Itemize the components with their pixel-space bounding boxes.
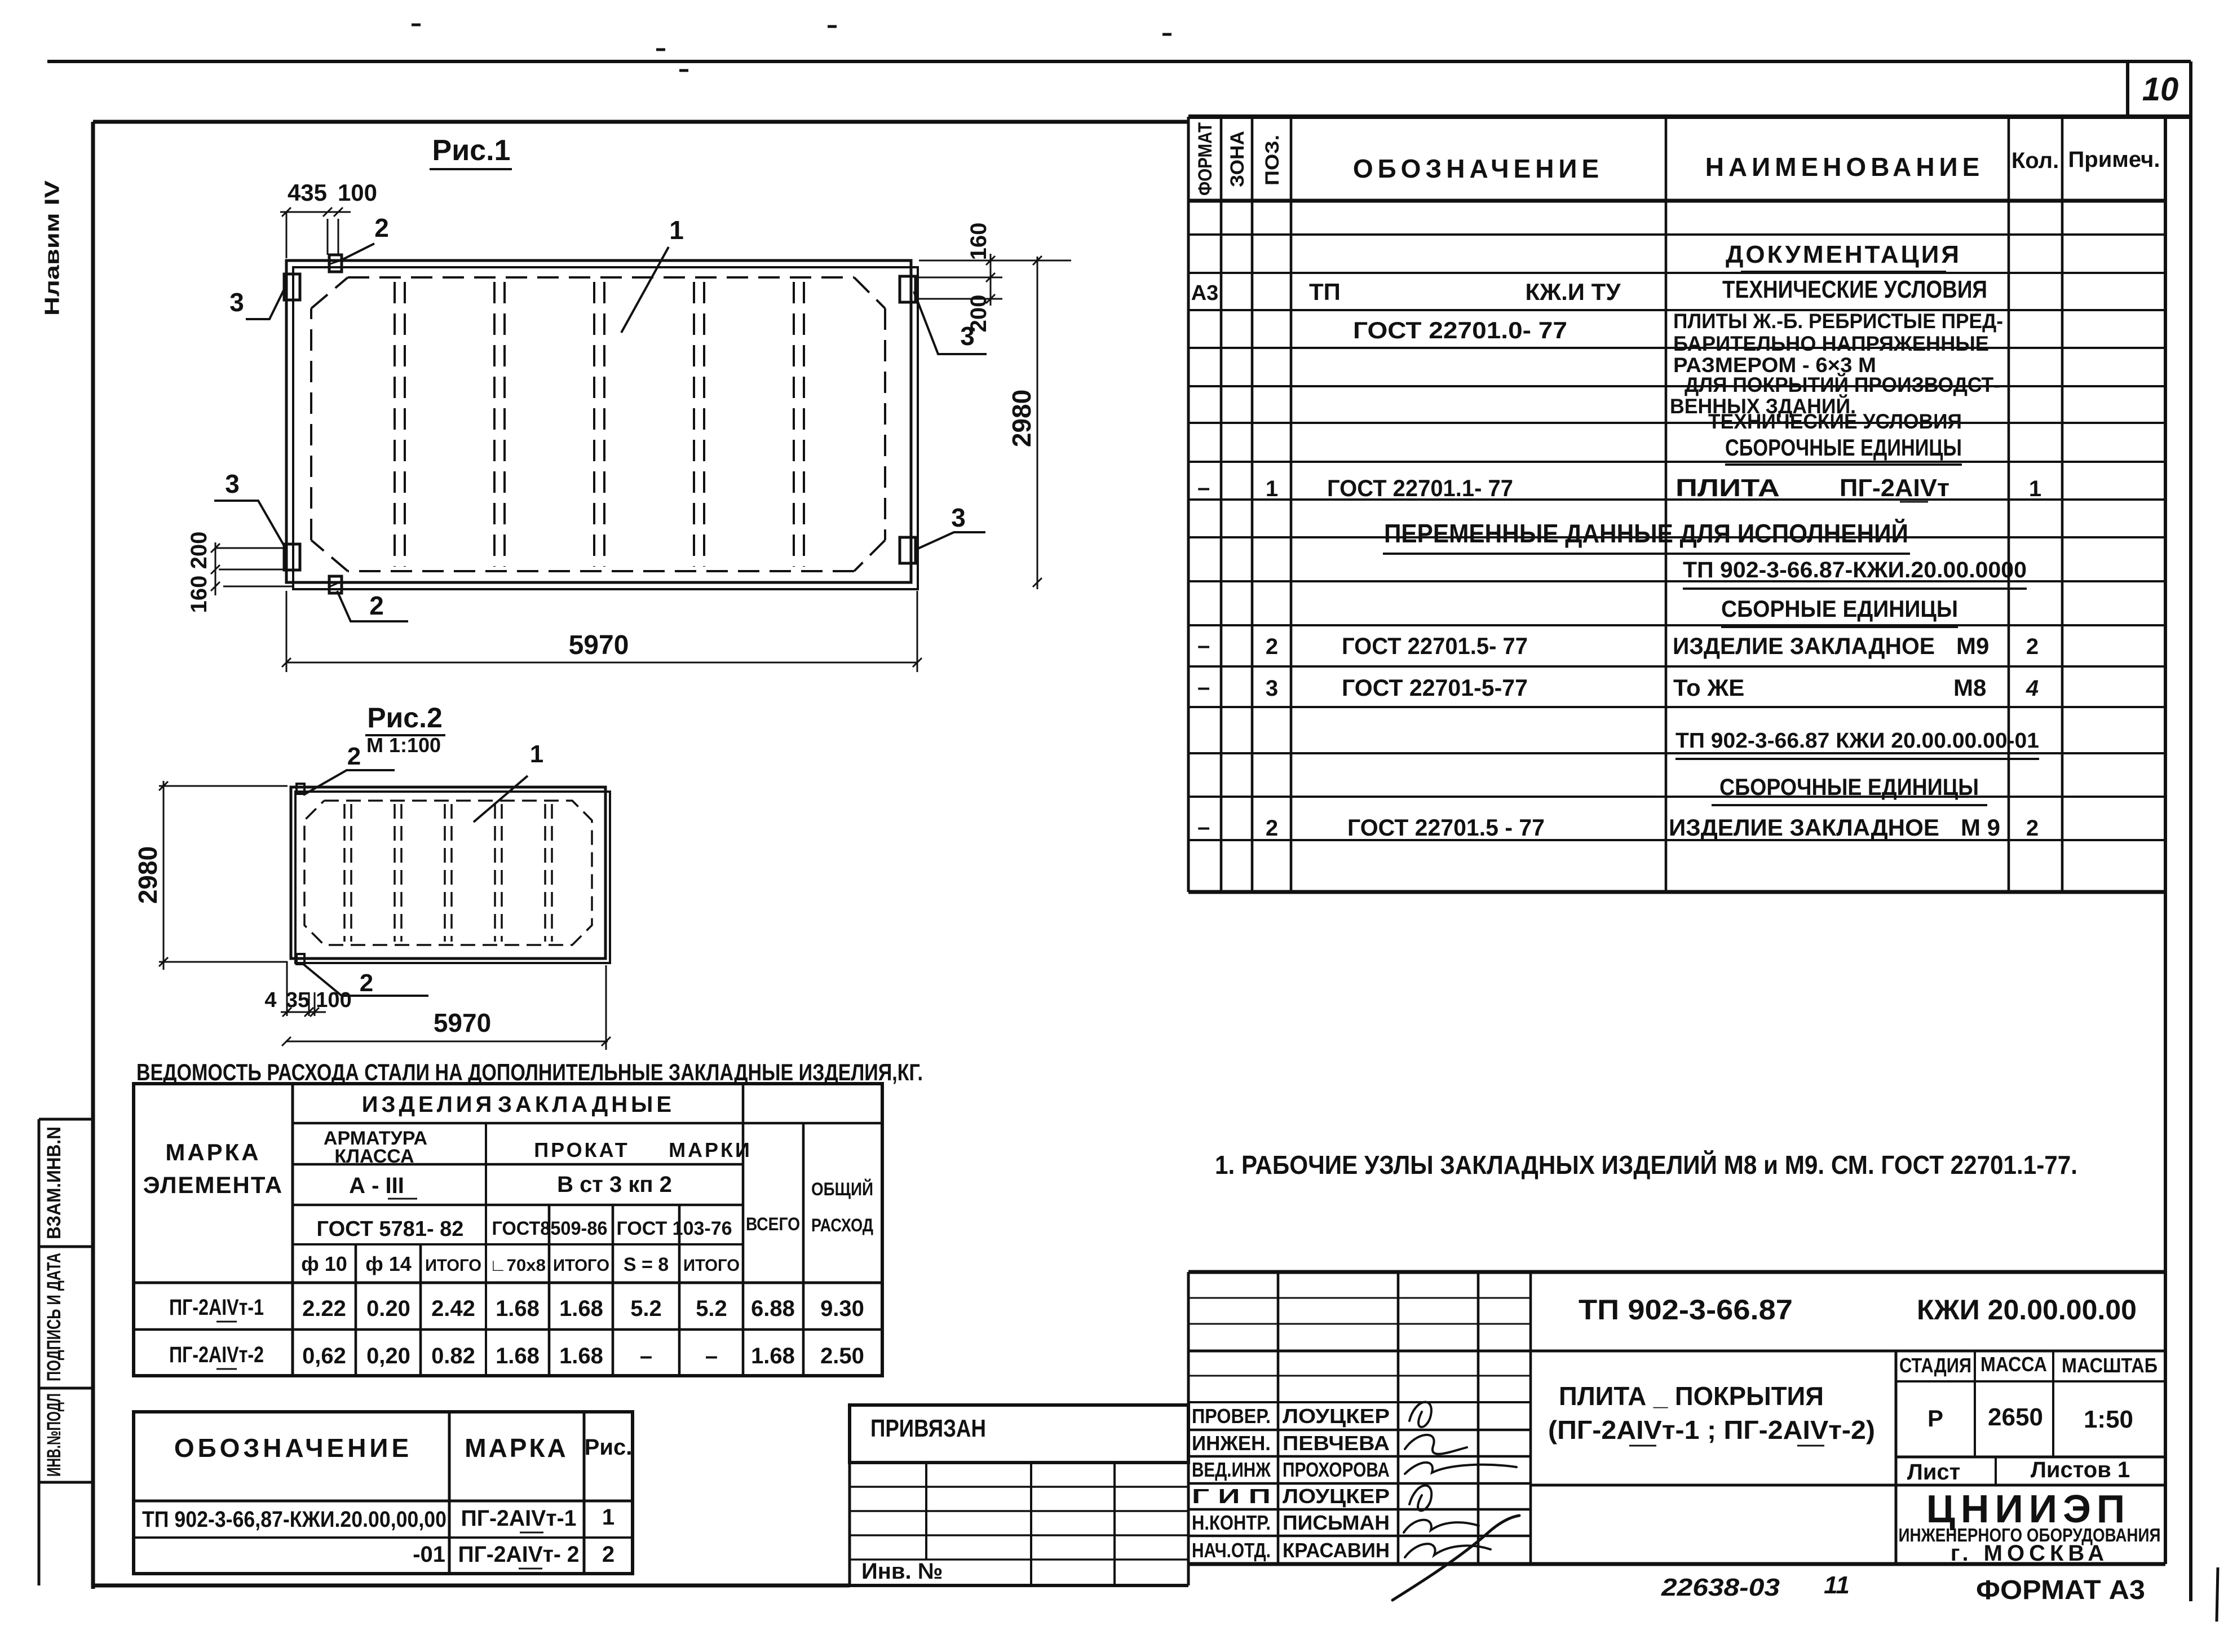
svg-text:БАРИТЕЛЬНО НАПРЯЖЕННЫЕ: БАРИТЕЛЬНО НАПРЯЖЕННЫЕ — [1673, 332, 1989, 355]
svg-text:ГОСТ 103-76: ГОСТ 103-76 — [617, 1218, 732, 1239]
svg-text:ПГ-2АIVт-2: ПГ-2АIVт-2 — [169, 1342, 264, 1367]
svg-text:Рис.2: Рис.2 — [367, 702, 443, 734]
svg-text:Примеч.: Примеч. — [2068, 147, 2160, 172]
svg-text:ЛОУЦКЕР: ЛОУЦКЕР — [1283, 1485, 1390, 1508]
svg-text:Н.КОНТР.: Н.КОНТР. — [1192, 1511, 1271, 1534]
svg-text:35: 35 — [286, 988, 310, 1012]
svg-text:1.68: 1.68 — [751, 1344, 795, 1368]
svg-text:Рис.: Рис. — [585, 1435, 633, 1460]
svg-text:ПЛИТА _ ПОКРЫТИЯ: ПЛИТА _ ПОКРЫТИЯ — [1559, 1381, 1824, 1411]
svg-text:1: 1 — [2029, 476, 2041, 501]
svg-text:КЛАССА: КЛАССА — [334, 1146, 414, 1167]
svg-text:ПГ-2АIVт-1: ПГ-2АIVт-1 — [169, 1295, 264, 1320]
svg-text:ТП: ТП — [1309, 279, 1341, 305]
svg-text:ИТОГО: ИТОГО — [425, 1256, 481, 1275]
svg-text:1. РАБОЧИЕ УЗЛЫ ЗАКЛАДНЫХ: 1. РАБОЧИЕ УЗЛЫ ЗАКЛАДНЫХ ИЗДЕЛИЙ М8 и М… — [1215, 1150, 2077, 1180]
svg-text:ИНВ.№ПОДЛ: ИНВ.№ПОДЛ — [43, 1393, 65, 1477]
svg-text:ЭЛЕМЕНТА: ЭЛЕМЕНТА — [143, 1172, 283, 1198]
svg-text:1.68: 1.68 — [496, 1344, 540, 1368]
svg-text:М9: М9 — [1956, 633, 1989, 659]
svg-text:1.68: 1.68 — [559, 1344, 603, 1368]
svg-text:200: 200 — [187, 532, 211, 569]
svg-text:22638-03: 22638-03 — [1661, 1574, 1780, 1601]
svg-text:В ст 3 кп 2: В ст 3 кп 2 — [557, 1172, 672, 1197]
svg-text:ИНЖЕН.: ИНЖЕН. — [1192, 1432, 1271, 1455]
svg-text:5970: 5970 — [569, 630, 629, 660]
svg-text:ОБОЗНАЧЕНИЕ: ОБОЗНАЧЕНИЕ — [1353, 154, 1603, 183]
svg-text:10: 10 — [2142, 71, 2179, 108]
svg-text:М8: М8 — [1953, 674, 1986, 701]
svg-text:ГОСТ 22701.0- 77: ГОСТ 22701.0- 77 — [1353, 317, 1567, 343]
svg-text:А3: А3 — [1191, 281, 1219, 305]
svg-text:НАЧ.ОТД.: НАЧ.ОТД. — [1192, 1539, 1271, 1562]
svg-text:0,62: 0,62 — [302, 1344, 346, 1368]
svg-text:ТЕХНИЧЕСКИЕ УСЛОВИЯ: ТЕХНИЧЕСКИЕ УСЛОВИЯ — [1722, 276, 1987, 303]
svg-text:–: – — [1197, 815, 1210, 840]
svg-text:2: 2 — [2026, 634, 2039, 659]
svg-text:∟70х8: ∟70х8 — [489, 1256, 546, 1275]
svg-text:ИЗДЕЛИЕ ЗАКЛАДНОЕ: ИЗДЕЛИЕ ЗАКЛАДНОЕ — [1673, 633, 1935, 659]
svg-text:ИТОГО: ИТОГО — [553, 1256, 609, 1275]
svg-text:КРАСАВИН: КРАСАВИН — [1283, 1539, 1390, 1562]
svg-text:ФОРМАТ: ФОРМАТ — [1195, 122, 1216, 196]
svg-text:(ПГ-2АIVт-1 ; ПГ-2АIVт-2): (ПГ-2АIVт-1 ; ПГ-2АIVт-2) — [1548, 1415, 1875, 1445]
svg-text:СБОРНЫЕ ЕДИНИЦЫ: СБОРНЫЕ ЕДИНИЦЫ — [1721, 595, 1958, 622]
svg-text:ПЕВЧЕВА: ПЕВЧЕВА — [1283, 1432, 1390, 1455]
svg-text:СБОРОЧНЫЕ ЕДИНИЦЫ: СБОРОЧНЫЕ ЕДИНИЦЫ — [1725, 434, 1962, 461]
svg-text:2.42: 2.42 — [431, 1296, 475, 1321]
svg-text:ДЛЯ ПОКРЫТИЙ ПРОИЗВОДСТ-: ДЛЯ ПОКРЫТИЙ ПРОИЗВОДСТ- — [1685, 373, 2000, 396]
svg-text:То ЖЕ: То ЖЕ — [1673, 674, 1744, 701]
svg-text:2: 2 — [1266, 816, 1278, 841]
svg-text:4: 4 — [2026, 676, 2039, 701]
svg-text:5.2: 5.2 — [696, 1296, 727, 1321]
svg-text:1: 1 — [530, 740, 543, 768]
svg-text:ЛОУЦКЕР: ЛОУЦКЕР — [1283, 1404, 1390, 1428]
svg-text:ПОДПИСЬ И ДАТА: ПОДПИСЬ И ДАТА — [43, 1253, 65, 1381]
svg-text:Кол.: Кол. — [2011, 148, 2059, 173]
svg-text:Р: Р — [1927, 1405, 1943, 1432]
svg-text:ИТОГО: ИТОГО — [683, 1256, 740, 1275]
svg-text:ГОСТ8509-86: ГОСТ8509-86 — [492, 1218, 608, 1239]
svg-text:ФОРМАТ А3: ФОРМАТ А3 — [1976, 1575, 2145, 1605]
svg-text:2: 2 — [360, 969, 373, 997]
svg-text:г. МОСКВА: г. МОСКВА — [1951, 1541, 2108, 1566]
svg-text:НАИМЕНОВАНИЕ: НАИМЕНОВАНИЕ — [1705, 152, 1984, 182]
svg-text:ТП 902-3-66.87-КЖИ.20.00.0000: ТП 902-3-66.87-КЖИ.20.00.0000 — [1683, 558, 2027, 582]
svg-text:1: 1 — [1266, 476, 1278, 501]
svg-text:ПГ-2АIVт- 2: ПГ-2АIVт- 2 — [458, 1542, 580, 1567]
svg-text:2: 2 — [369, 591, 384, 620]
svg-text:1:50: 1:50 — [2084, 1406, 2133, 1433]
svg-text:2: 2 — [2026, 816, 2039, 841]
svg-text:–: – — [640, 1344, 652, 1368]
svg-text:100: 100 — [338, 179, 377, 206]
svg-text:ГОСТ 22701.5 - 77: ГОСТ 22701.5 - 77 — [1347, 814, 1545, 841]
svg-text:Листов 1: Листов 1 — [2031, 1457, 2130, 1482]
svg-text:ПИСЬМАН: ПИСЬМАН — [1283, 1511, 1390, 1534]
svg-text:2: 2 — [347, 743, 361, 770]
svg-text:435: 435 — [288, 179, 327, 206]
svg-text:МАРКА: МАРКА — [465, 1433, 568, 1463]
svg-text:Инв. №: Инв. № — [861, 1559, 943, 1584]
svg-text:5970: 5970 — [434, 1008, 491, 1037]
svg-text:1.68: 1.68 — [496, 1296, 540, 1321]
svg-text:ПРОВЕР.: ПРОВЕР. — [1192, 1404, 1271, 1428]
svg-text:ВЗАМ.ИНВ.N: ВЗАМ.ИНВ.N — [43, 1127, 65, 1239]
svg-text:Рис.1: Рис.1 — [432, 134, 511, 167]
svg-text:3: 3 — [951, 503, 966, 532]
svg-text:1: 1 — [602, 1505, 614, 1530]
svg-text:–: – — [705, 1344, 718, 1368]
svg-text:2650: 2650 — [1988, 1403, 2043, 1431]
svg-text:ТЕХНИЧЕСКИЕ УСЛОВИЯ: ТЕХНИЧЕСКИЕ УСЛОВИЯ — [1708, 410, 1962, 433]
svg-text:1: 1 — [669, 215, 684, 245]
svg-text:А - III: А - III — [349, 1173, 404, 1198]
svg-text:М 9: М 9 — [1961, 814, 2000, 841]
svg-text:РАСХОД: РАСХОД — [811, 1215, 873, 1235]
svg-text:ПГ-2АIVт: ПГ-2АIVт — [1840, 474, 1949, 502]
svg-text:ТП 902-3-66.87 КЖИ 20.00.00.00: ТП 902-3-66.87 КЖИ 20.00.00.00-01 — [1675, 729, 2039, 753]
svg-text:ГОСТ 22701-5-77: ГОСТ 22701-5-77 — [1342, 674, 1528, 701]
svg-text:ПЕРЕМЕННЫЕ ДАННЫЕ ДЛЯ ИСПОЛ: ПЕРЕМЕННЫЕ ДАННЫЕ ДЛЯ ИСПОЛНЕНИЙ — [1384, 519, 1908, 548]
svg-text:КЖ.И ТУ: КЖ.И ТУ — [1526, 279, 1621, 305]
svg-text:3: 3 — [229, 288, 244, 317]
svg-text:ОБЩИЙ: ОБЩИЙ — [811, 1179, 873, 1199]
svg-text:3: 3 — [225, 469, 240, 498]
svg-text:ГОСТ 22701.5- 77: ГОСТ 22701.5- 77 — [1342, 633, 1528, 659]
svg-text:Нлавим IV: Нлавим IV — [41, 180, 64, 316]
svg-text:Г И П: Г И П — [1192, 1485, 1271, 1508]
svg-text:0.20: 0.20 — [366, 1296, 410, 1321]
svg-text:0,20: 0,20 — [366, 1344, 410, 1368]
svg-text:2.50: 2.50 — [820, 1344, 864, 1368]
svg-text:2.22: 2.22 — [302, 1296, 346, 1321]
svg-text:2: 2 — [1266, 634, 1278, 659]
svg-text:ф 10: ф 10 — [301, 1252, 347, 1275]
svg-text:2: 2 — [374, 213, 389, 242]
svg-text:ИЗДЕЛИЕ ЗАКЛАДНОЕ: ИЗДЕЛИЕ ЗАКЛАДНОЕ — [1669, 814, 1939, 841]
svg-text:ЗАКЛАДНЫЕ: ЗАКЛАДНЫЕ — [498, 1092, 675, 1117]
svg-text:–: – — [1197, 675, 1210, 700]
svg-text:–: – — [1197, 475, 1210, 500]
svg-text:160: 160 — [966, 223, 991, 260]
svg-text:МАРКА: МАРКА — [165, 1139, 260, 1165]
svg-text:2: 2 — [602, 1542, 614, 1567]
svg-text:ПРИВЯЗАН: ПРИВЯЗАН — [870, 1415, 986, 1442]
svg-text:ВЕД.ИНЖ: ВЕД.ИНЖ — [1192, 1458, 1271, 1481]
svg-text:S = 8: S = 8 — [624, 1254, 669, 1275]
svg-text:3: 3 — [1266, 676, 1278, 701]
svg-text:2980: 2980 — [133, 846, 162, 904]
svg-text:4: 4 — [264, 988, 276, 1012]
svg-text:1.68: 1.68 — [559, 1296, 603, 1321]
svg-text:ПРОХОРОВА: ПРОХОРОВА — [1283, 1458, 1390, 1481]
svg-text:–: – — [1197, 633, 1210, 658]
svg-text:3: 3 — [960, 321, 975, 351]
svg-text:ДОКУМЕНТАЦИЯ: ДОКУМЕНТАЦИЯ — [1726, 241, 1961, 268]
svg-text:11: 11 — [1824, 1571, 1850, 1599]
svg-text:-01: -01 — [413, 1542, 445, 1567]
svg-text:ТП 902-3-66.87: ТП 902-3-66.87 — [1579, 1294, 1793, 1326]
svg-text:ПГ-2АIVт-1: ПГ-2АIVт-1 — [461, 1506, 577, 1531]
svg-text:ф 14: ф 14 — [365, 1252, 412, 1275]
svg-text:160: 160 — [187, 576, 211, 613]
svg-text:9.30: 9.30 — [820, 1296, 864, 1321]
svg-text:МАССА: МАССА — [1980, 1353, 2047, 1376]
svg-text:КЖИ 20.00.00.00: КЖИ 20.00.00.00 — [1917, 1294, 2137, 1326]
svg-text:ИЗДЕЛИЯ: ИЗДЕЛИЯ — [362, 1092, 496, 1117]
svg-text:ТП 902-3-66,87-КЖИ.20.00,00,0: ТП 902-3-66,87-КЖИ.20.00,00,00 — [142, 1507, 446, 1532]
svg-text:Лист: Лист — [1907, 1460, 1961, 1485]
svg-text:100: 100 — [316, 988, 351, 1012]
svg-text:СБОРОЧНЫЕ ЕДИНИЦЫ: СБОРОЧНЫЕ ЕДИНИЦЫ — [1719, 774, 1979, 800]
svg-text:ПЛИТЫ Ж.-Б. РЕБРИСТЫЕ ПРЕД-: ПЛИТЫ Ж.-Б. РЕБРИСТЫЕ ПРЕД- — [1673, 310, 2003, 333]
svg-text:ПЛИТА: ПЛИТА — [1675, 474, 1780, 502]
svg-text:ПРОКАТ: ПРОКАТ — [534, 1138, 630, 1161]
svg-text:ВСЕГО: ВСЕГО — [746, 1214, 800, 1234]
svg-text:М 1:100: М 1:100 — [366, 734, 441, 757]
svg-text:ПОЗ.: ПОЗ. — [1262, 135, 1283, 185]
svg-text:СТАДИЯ: СТАДИЯ — [1899, 1354, 1971, 1377]
svg-text:ГОСТ 5781- 82: ГОСТ 5781- 82 — [317, 1217, 464, 1241]
svg-text:2980: 2980 — [1007, 390, 1036, 447]
svg-text:5.2: 5.2 — [630, 1296, 662, 1321]
svg-text:ГОСТ 22701.1- 77: ГОСТ 22701.1- 77 — [1327, 475, 1513, 501]
svg-text:МАРКИ: МАРКИ — [669, 1138, 752, 1161]
svg-text:ВЕДОМОСТЬ РАСХОДА СТАЛИ НА ДОП: ВЕДОМОСТЬ РАСХОДА СТАЛИ НА ДОПОЛНИТЕЛЬНЫ… — [136, 1059, 923, 1085]
svg-text:МАСШТАБ: МАСШТАБ — [2062, 1354, 2158, 1377]
svg-text:ОБОЗНАЧЕНИЕ: ОБОЗНАЧЕНИЕ — [174, 1433, 412, 1463]
svg-text:ЗОНА: ЗОНА — [1227, 131, 1248, 187]
svg-text:0.82: 0.82 — [431, 1344, 475, 1368]
svg-text:6.88: 6.88 — [751, 1296, 795, 1321]
